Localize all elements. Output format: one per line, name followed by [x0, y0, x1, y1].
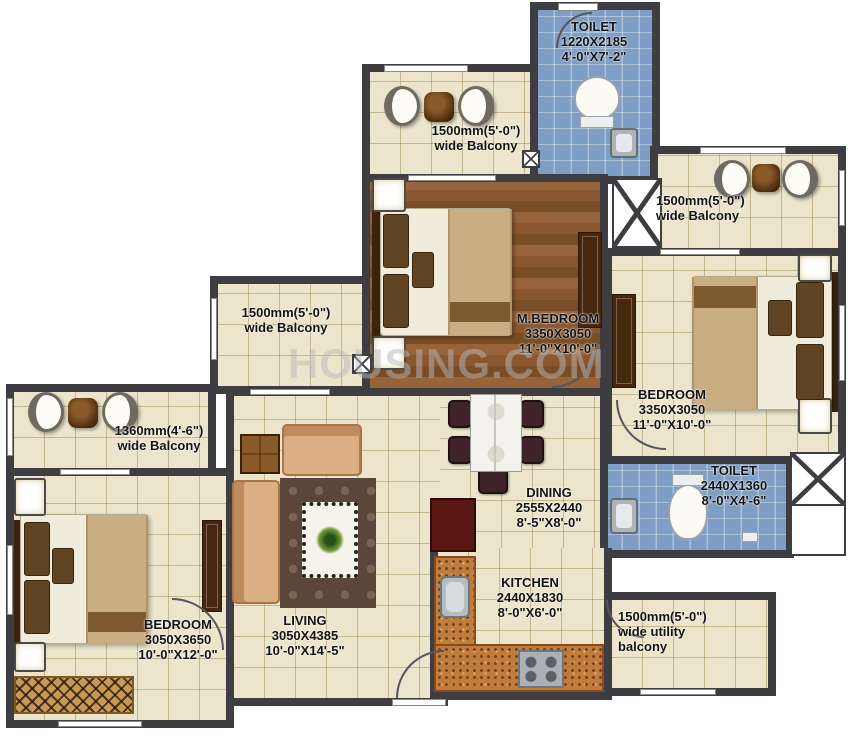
balcony-text: wide utility — [618, 625, 728, 640]
window — [7, 545, 13, 615]
pillow — [24, 580, 50, 634]
label-dining: DINING 2555X2440 8'-5"X8'-0" — [494, 486, 604, 530]
nightstand — [372, 178, 406, 212]
sliding-door-opening — [660, 249, 740, 255]
dining-table — [470, 394, 522, 472]
balcony-round-table — [752, 164, 780, 192]
bedroom-rug — [14, 676, 134, 714]
label-kitchen: KITCHEN 2440X1830 8'-0"X6'-0" — [474, 576, 586, 620]
balcony-width: 1500mm(5'-0") — [656, 194, 786, 209]
nightstand — [798, 398, 832, 434]
pillow — [796, 282, 824, 338]
label-toilet-top: TOILET 1220X2185 4'-0"X7'-2" — [534, 20, 654, 64]
label-bedroom-right: BEDROOM 3350X3050 11'-0"X10'-0" — [612, 388, 732, 432]
floor-plan: TOILET 1220X2185 4'-0"X7'-2" 1500mm(5'-0… — [0, 0, 848, 742]
wash-basin — [610, 498, 638, 534]
bed-headboard — [372, 204, 380, 348]
room-dim-ft: 8'-5"X8'-0" — [494, 516, 604, 531]
window — [211, 298, 217, 360]
room-dim-mm: 3350X3050 — [468, 327, 648, 342]
room-dim-ft: 4'-0"X7'-2" — [534, 50, 654, 65]
balcony-text: wide Balcony — [656, 209, 786, 224]
entrance-opening — [392, 699, 446, 706]
room-name: LIVING — [246, 614, 364, 629]
pillow — [768, 300, 792, 336]
nightstand — [372, 336, 406, 370]
balcony-chair — [28, 392, 64, 432]
tv-unit — [202, 520, 222, 612]
balcony-round-table — [68, 398, 98, 428]
dining-chair — [520, 436, 544, 464]
dining-chair — [448, 436, 472, 464]
balcony-width: 1500mm(5'-0") — [618, 610, 728, 625]
label-balcony-right: 1500mm(5'-0") wide Balcony — [656, 194, 786, 224]
room-dim-mm: 2555X2440 — [494, 501, 604, 516]
window — [58, 721, 142, 727]
duct-shaft — [790, 504, 846, 556]
balcony-text: balcony — [618, 640, 728, 655]
room-dim-mm: 3050X3650 — [108, 633, 248, 648]
pillow — [383, 274, 409, 328]
label-living: LIVING 3050X4385 10'-0"X14'-5" — [246, 614, 364, 658]
room-dim-ft: 8'-0"X6'-0" — [474, 606, 586, 621]
balcony-width: 1500mm(5'-0") — [226, 306, 346, 321]
room-dim-ft: 10'-0"X14'-5" — [246, 644, 364, 659]
room-name: DINING — [494, 486, 604, 501]
sliding-door-opening — [60, 469, 130, 475]
toilet-tank — [580, 116, 614, 128]
wash-basin — [610, 128, 638, 158]
room-name: BEDROOM — [108, 618, 248, 633]
label-toilet-right: TOILET 2440X1360 8'-0"X4'-6" — [676, 464, 792, 508]
dining-chair — [520, 400, 544, 428]
sliding-door-opening — [408, 175, 496, 181]
kitchen-sink — [440, 576, 470, 618]
room-dim-ft: 8'-0"X4'-6" — [676, 494, 792, 509]
label-balcony-top: 1500mm(5'-0") wide Balcony — [416, 124, 536, 154]
side-table — [240, 434, 280, 474]
room-dim-mm: 2440X1360 — [676, 479, 792, 494]
two-seater-sofa — [282, 424, 362, 476]
pillow — [52, 548, 74, 584]
room-name: BEDROOM — [612, 388, 732, 403]
room-dim-mm: 2440X1830 — [474, 591, 586, 606]
nightstand — [14, 478, 46, 516]
room-dim-ft: 11'-0"X10'-0" — [612, 418, 732, 433]
window — [384, 65, 468, 72]
balcony-text: wide Balcony — [104, 439, 214, 454]
toilet-fixture — [574, 76, 620, 120]
label-balcony-left: 1360mm(4'-6") wide Balcony — [104, 424, 214, 454]
room-name: TOILET — [676, 464, 792, 479]
toilet-shelf — [742, 532, 758, 542]
three-seater-sofa — [232, 480, 280, 604]
window — [7, 398, 13, 456]
pillow — [383, 214, 409, 268]
balcony-chair — [458, 86, 494, 126]
door-opening — [558, 3, 598, 11]
nightstand — [798, 254, 832, 282]
duct-shaft-small — [352, 354, 372, 374]
room-dim-mm: 3350X3050 — [612, 403, 732, 418]
pillow — [796, 344, 824, 400]
balcony-chair — [384, 86, 420, 126]
room-dim-ft: 10'-0"X12'-0" — [108, 648, 248, 663]
duct-shaft — [612, 178, 662, 248]
window — [640, 689, 716, 695]
dining-chair — [448, 400, 472, 428]
room-dim-mm: 3050X4385 — [246, 629, 364, 644]
room-name: TOILET — [534, 20, 654, 35]
balcony-text: wide Balcony — [416, 139, 536, 154]
balcony-text: wide Balcony — [226, 321, 346, 336]
balcony-chair — [782, 160, 818, 198]
sliding-door-opening — [250, 389, 330, 395]
label-utility-balcony: 1500mm(5'-0") wide utility balcony — [618, 610, 728, 654]
window — [839, 170, 845, 226]
room-name: KITCHEN — [474, 576, 586, 591]
flower-centerpiece — [316, 526, 344, 554]
balcony-width: 1500mm(5'-0") — [416, 124, 536, 139]
balcony-round-table — [424, 92, 454, 122]
nightstand — [14, 642, 46, 672]
balcony-width: 1360mm(4'-6") — [104, 424, 214, 439]
label-master-bedroom: M.BEDROOM 3350X3050 11'-0"X10'-0" — [468, 312, 648, 356]
pillow — [24, 522, 50, 576]
blanket-stripe — [694, 286, 756, 308]
label-balcony-midleft: 1500mm(5'-0") wide Balcony — [226, 306, 346, 336]
refrigerator — [430, 498, 476, 552]
duct-shaft — [790, 452, 846, 506]
stove-hob — [518, 650, 564, 688]
window — [839, 305, 845, 381]
room-name: M.BEDROOM — [468, 312, 648, 327]
room-dim-ft: 11'-0"X10'-0" — [468, 342, 648, 357]
window — [700, 147, 786, 154]
room-dim-mm: 1220X2185 — [534, 35, 654, 50]
label-bedroom-left: BEDROOM 3050X3650 10'-0"X12'-0" — [108, 618, 248, 662]
pillow — [412, 252, 434, 288]
